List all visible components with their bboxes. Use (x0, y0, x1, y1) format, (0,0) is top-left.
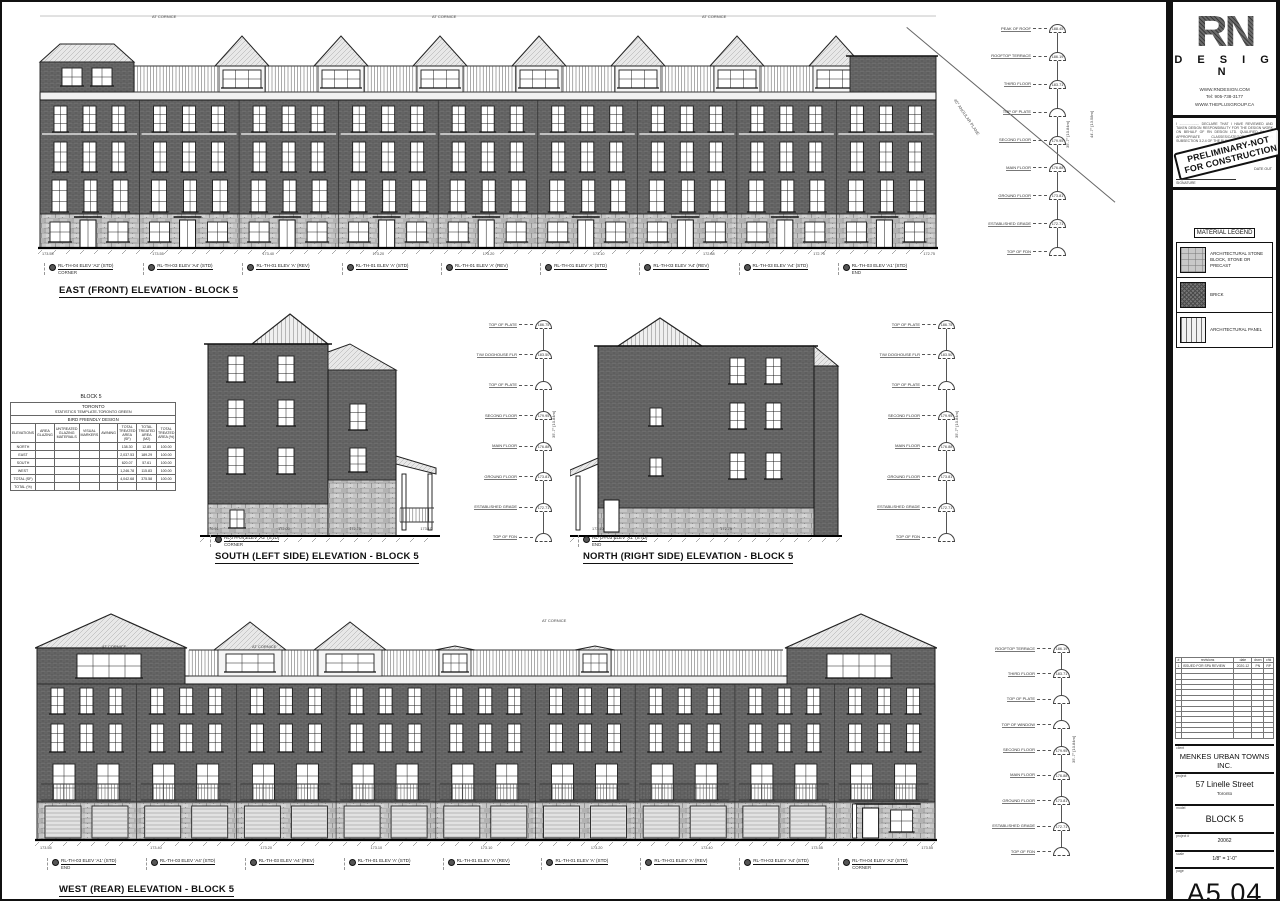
legend-item: ARCHITECTURAL PANEL (1177, 313, 1272, 347)
level-row: ESTABLISHED GRADE172.71 (442, 503, 552, 512)
scale-field: scale 1/8" = 1'-0" (1175, 850, 1274, 867)
stone-swatch-icon (1180, 247, 1206, 273)
stats-col: ELEVATIONS (11, 424, 36, 443)
level-row: TOP OF PLATE (952, 695, 1070, 704)
keynote-bubble-icon (215, 536, 222, 543)
keynote-bubble-icon (247, 264, 254, 271)
east-elevation-drawing (38, 8, 938, 260)
keynote-bubble-icon (843, 264, 850, 271)
keynote-bubble-icon (347, 264, 354, 271)
level-row: T/W DOGHOUSE FLR183.50 (442, 350, 552, 359)
stats-row: NORTH138.3012.85100.00 (11, 443, 176, 451)
north-base-grades: 173.10172.75 (592, 527, 732, 531)
stats-row: SOUTH620.0757.61100.00 (11, 459, 176, 467)
project-number-field: project # 20062 (1175, 832, 1274, 850)
level-row: ESTABLISHED GRADE172.71 (845, 503, 955, 512)
drawing-canvas: 173.55173.55173.40173.20173.20173.10172.… (2, 2, 1166, 899)
level-row: MAIN FLOOR176.88 (952, 771, 1070, 780)
stats-row: TOTAL (%) (11, 483, 176, 491)
west-elevation-drawing (35, 588, 937, 854)
north-elevation-drawing (570, 308, 842, 554)
south-base-grades: 170.91172.00172.75173.10 (207, 527, 432, 531)
stats-col: TOTAL TREATED AREA (M2) (137, 424, 157, 443)
level-row: SECOND FLOOR179.95 (845, 411, 955, 420)
west-elevation-title: WEST (REAR) ELEVATION - BLOCK 5 (59, 884, 234, 897)
keynote: RL-TH-01 ELEV 'A' (STD) (342, 263, 441, 275)
project-name: 57 Linelle Street (1177, 780, 1272, 789)
declaration-block: I ..................... DECLARE THAT I H… (1173, 118, 1276, 190)
south-elevation-drawing (200, 308, 440, 554)
drawing-sheet: 173.55173.55173.40173.20173.20173.10172.… (0, 0, 1280, 901)
firm-contact: WWW.RNDESIGN.COMTel: 905-738-3177WWW.THE… (1173, 86, 1276, 109)
level-row: GROUND FLOOR173.81 (845, 472, 955, 481)
level-row: MAIN FLOOR176.88 (946, 163, 1066, 172)
firm-logo-block: RN D E S I G N WWW.RNDESIGN.COMTel: 905-… (1173, 2, 1276, 118)
project-field: project 57 Linelle Street Toronto (1175, 772, 1274, 804)
stats-block-title: BLOCK 5 (10, 394, 172, 400)
north-keynotes: RL-TH-03 ELEV 'A1' (STD)END (578, 535, 748, 547)
material-legend-title: MATERIAL LEGEND (1194, 228, 1256, 238)
stats-col: TOTAL TREATED AREA (SF) (117, 424, 137, 443)
stats-col: AREA GLAZING (36, 424, 55, 443)
level-row: TOP OF PLATE (946, 108, 1066, 117)
keynote: RL-TH-03 ELEV 'A4' (REV) (639, 263, 738, 275)
project-city: Toronto (1177, 791, 1272, 796)
keynote: RL-TH-03 ELEV 'A4' (REV) (245, 858, 344, 870)
level-row: TOP OF FDN (946, 247, 1066, 256)
client-name: MENKES URBAN TOWNS INC. (1177, 752, 1272, 771)
north-elevation-title: NORTH (RIGHT SIDE) ELEVATION - BLOCK 5 (583, 551, 793, 564)
keynote: RL-TH-01 ELEV 'A' (STD) (540, 263, 639, 275)
stats-row: EAST2,037.53189.29100.00 (11, 451, 176, 459)
date-out-label: DATE OUT (1254, 167, 1272, 171)
level-row: TOP OF PLATE186.75 (442, 320, 552, 329)
east-base-grades: 173.55173.55173.40173.20173.20173.10172.… (42, 252, 935, 256)
model-field: model BLOCK 5 (1175, 804, 1274, 832)
stats-row: WEST1,246.78115.83100.00 (11, 467, 176, 475)
level-row: THIRD FLOOR183.71 (952, 669, 1070, 678)
west-overall-dim: 35'-7" [10.84m] (1071, 736, 1076, 763)
level-row: TOP OF FDN (952, 847, 1070, 856)
stats-city: TORONTOSTATISTICS TEMPLATE-TORONTO GREEN (11, 403, 176, 416)
keynote-bubble-icon (349, 859, 356, 866)
level-row: GROUND FLOOR173.81 (946, 191, 1066, 200)
stats-col: TOTAL TREATED AREA (%) (156, 424, 176, 443)
south-elevation-title: SOUTH (LEFT SIDE) ELEVATION - BLOCK 5 (215, 551, 419, 564)
keynote: RL-TH-04 ELEV 'A2' (STD)CORNER (44, 263, 143, 275)
stats-col: AWNING (100, 424, 118, 443)
rn-design-logo: RN (1173, 12, 1276, 52)
keynote-bubble-icon (52, 859, 59, 866)
signature-label: SIGNATURE (1176, 179, 1236, 185)
sheet-number: A5 04 (1177, 878, 1272, 901)
keynote-bubble-icon (446, 264, 453, 271)
keynote: RL-TH-03 ELEV 'A1' (STD)END (47, 858, 146, 870)
legend-item: ARCHITECTURAL STONE BLOCK, STONE OR PREC… (1177, 243, 1272, 278)
revisions-table: #revisionsdatedrwnchk1ISSUED FOR SPA REV… (1175, 657, 1274, 739)
level-row: GROUND FLOOR173.81 (442, 472, 552, 481)
level-row: TOP OF PLATE186.75 (845, 320, 955, 329)
keynote: RL-TH-01 ELEV 'A' (REV) (441, 263, 540, 275)
level-row: MAIN FLOOR176.88 (442, 442, 552, 451)
level-row: SECOND FLOOR179.95 (952, 746, 1070, 755)
keynote-bubble-icon (583, 536, 590, 543)
block-name: BLOCK 5 (1177, 814, 1272, 824)
east-dimension-ladder: PEAK OF ROOF188.45ROOFTOP TERRACE186.19T… (946, 24, 1066, 256)
keynote-bubble-icon (148, 264, 155, 271)
keynote-bubble-icon (545, 264, 552, 271)
keynote: RL-TH-03 ELEV 'A4' (STD) (143, 263, 242, 275)
west-dimension-ladder: ROOFTOP TERRACE186.19THIRD FLOOR183.71TO… (952, 644, 1070, 856)
south-keynotes: RL-TH-04 ELEV 'A2' (STD)CORNER (210, 535, 380, 547)
keynote-bubble-icon (448, 859, 455, 866)
keynote: RL-TH-03 ELEV 'A4' (STD) (739, 858, 838, 870)
west-base-grades: 173.55173.40173.20173.10173.10173.20173.… (40, 846, 933, 850)
level-row: PEAK OF ROOF188.45 (946, 24, 1066, 33)
level-row: ESTABLISHED GRADE172.71 (952, 822, 1070, 831)
keynote: RL-TH-03 ELEV 'A4' (STD) (739, 263, 838, 275)
keynote-bubble-icon (744, 264, 751, 271)
bird-friendly-stats-table: BLOCK 5 TORONTOSTATISTICS TEMPLATE-TORON… (10, 394, 172, 491)
keynote: RL-TH-04 ELEV 'A2' (STD)CORNER (210, 535, 380, 547)
client-field: client MENKES URBAN TOWNS INC. (1175, 744, 1274, 772)
titleblock-fields: client MENKES URBAN TOWNS INC. project 5… (1175, 744, 1274, 901)
stats-col: UNTREATED GLAZING MATERIALS (54, 424, 79, 443)
level-row: ROOFTOP TERRACE186.19 (952, 644, 1070, 653)
material-legend: MATERIAL LEGEND ARCHITECTURAL STONE BLOC… (1173, 228, 1276, 348)
keynote-bubble-icon (49, 264, 56, 271)
west-keynotes: RL-TH-03 ELEV 'A1' (STD)ENDRL-TH-03 ELEV… (47, 858, 937, 870)
keynote: RL-TH-01 ELEV 'A' (STD) (344, 858, 443, 870)
keynote: RL-TH-01 ELEV 'A' (REV) (242, 263, 341, 275)
keynote-bubble-icon (644, 264, 651, 271)
keynote: RL-TH-03 ELEV 'A1' (STD)END (838, 263, 937, 275)
keynote-bubble-icon (645, 859, 652, 866)
keynote-bubble-icon (546, 859, 553, 866)
north-dimension-ladder: TOP OF PLATE186.75T/W DOGHOUSE FLR183.50… (845, 320, 955, 542)
keynote: RL-TH-03 ELEV 'A4' (STD) (146, 858, 245, 870)
page-field: page A5 04 (1175, 867, 1274, 901)
keynote-bubble-icon (151, 859, 158, 866)
keynote: RL-TH-04 ELEV 'A2' (STD)CORNER (838, 858, 937, 870)
keynote: RL-TH-01 ELEV 'A' (REV) (640, 858, 739, 870)
titleblock-panel: RN D E S I G N WWW.RNDESIGN.COMTel: 905-… (1166, 2, 1278, 899)
stats-col: VISUAL MARKERS (79, 424, 100, 443)
keynote: RL-TH-01 ELEV 'A' (REV) (443, 858, 542, 870)
level-row: GROUND FLOOR173.81 (952, 796, 1070, 805)
level-row: T/W DOGHOUSE FLR183.50 (845, 350, 955, 359)
level-row: SECOND FLOOR179.95 (442, 411, 552, 420)
level-row: TOP OF FDN (845, 533, 955, 542)
south-dimension-ladder: TOP OF PLATE186.75T/W DOGHOUSE FLR183.50… (442, 320, 552, 542)
brick-swatch-icon (1180, 282, 1206, 308)
east-keynotes: RL-TH-04 ELEV 'A2' (STD)CORNERRL-TH-03 E… (44, 263, 937, 275)
stats-column-headers: ELEVATIONSAREA GLAZINGUNTREATED GLAZING … (11, 424, 176, 443)
level-row: TOP OF FDN (442, 533, 552, 542)
revision-row: 1ISSUED FOR SPA REVIEW2020-12PNRP (1176, 663, 1274, 668)
east-total-dim: 44'-7" [13.58m] (1089, 111, 1094, 138)
keynote-bubble-icon (843, 859, 850, 866)
level-row: TOP OF PLATE (845, 381, 955, 390)
level-row: ESTABLISHED GRADE172.71 (946, 219, 1066, 228)
legend-item: BRICK (1177, 278, 1272, 313)
drawing-scale: 1/8" = 1'-0" (1177, 856, 1272, 862)
level-row: ROOFTOP TERRACE186.19 (946, 52, 1066, 61)
level-row: SECOND FLOOR179.95 (946, 136, 1066, 145)
panel-swatch-icon (1180, 317, 1206, 343)
keynote: RL-TH-03 ELEV 'A1' (STD)END (578, 535, 748, 547)
level-row: TOP OF WINDOW (952, 720, 1070, 729)
level-row: TOP OF PLATE (442, 381, 552, 390)
east-elevation-title: EAST (FRONT) ELEVATION - BLOCK 5 (59, 285, 238, 298)
keynote-bubble-icon (744, 859, 751, 866)
keynote: RL-TH-01 ELEV 'A' (STD) (541, 858, 640, 870)
level-row: MAIN FLOOR176.88 (845, 442, 955, 451)
keynote-bubble-icon (250, 859, 257, 866)
project-number: 20062 (1177, 838, 1272, 844)
level-row: THIRD FLOOR183.71 (946, 80, 1066, 89)
stats-row: TOTAL (SF)4,042.68375.58100.00 (11, 475, 176, 483)
stats-program: BIRD FRIENDLY DESIGN (11, 416, 176, 424)
